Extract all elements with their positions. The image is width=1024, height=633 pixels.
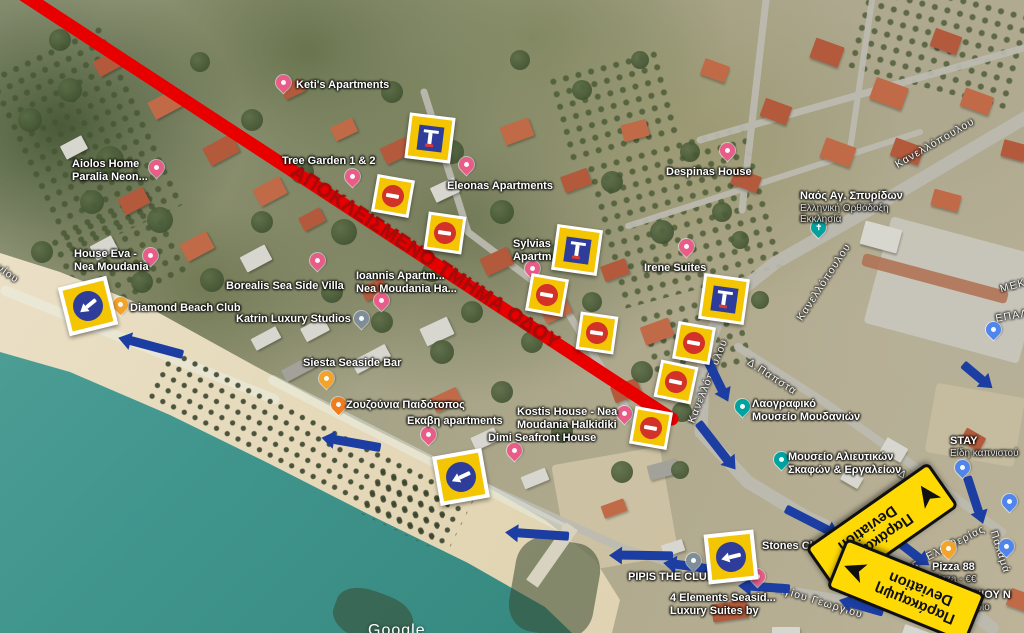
tree bbox=[572, 80, 592, 100]
tree bbox=[490, 200, 514, 224]
ioannis-apartments-label: Ioannis Apartm...Nea Moudania Ha... bbox=[356, 270, 457, 295]
building bbox=[772, 627, 800, 633]
turn-left-sign bbox=[432, 448, 490, 506]
no-entry-sign bbox=[653, 359, 698, 404]
tree bbox=[601, 171, 623, 193]
dead-end-sign bbox=[551, 224, 603, 276]
despinas-house-label: Despinas House bbox=[666, 166, 752, 179]
no-entry-sign bbox=[525, 273, 569, 317]
no-entry-sign bbox=[576, 312, 619, 355]
satellite-map[interactable]: ΑΠΟΚΛΕΙΣΜΕΝΟ ΤΜΗΜΑ ΟΔΟΥ ΚανελλόπουλουΚαν… bbox=[0, 0, 1024, 633]
tree bbox=[18, 108, 42, 132]
pipis-the-club-label: PIPIS THE CLUB bbox=[628, 571, 715, 584]
tree bbox=[49, 29, 71, 51]
tree bbox=[251, 211, 273, 233]
tree bbox=[631, 51, 649, 69]
zouzounia-label: Ζουζούνια Παιδότοπος bbox=[346, 399, 465, 412]
kostis-house-label: Kostis House - NeaMoudania Halkidiki bbox=[517, 406, 617, 431]
diamond-beach-club-label: Diamond Beach Club bbox=[130, 302, 241, 315]
four-elements-label: 4 Elements Seasid...Luxury Suites by bbox=[670, 592, 776, 617]
dead-end-icon bbox=[563, 236, 591, 264]
tree bbox=[430, 340, 454, 364]
stay-shop-label: STAYΕίδη καπνιστού bbox=[950, 435, 1019, 459]
no-entry-icon bbox=[534, 282, 559, 307]
tree bbox=[680, 142, 700, 162]
tree bbox=[241, 109, 263, 131]
no-entry-icon bbox=[433, 221, 458, 246]
house-eva-label: House Eva -Nea Moudania bbox=[74, 248, 149, 273]
dead-end-sign bbox=[698, 273, 750, 325]
left-arrow-icon bbox=[77, 296, 99, 316]
tree bbox=[582, 292, 602, 312]
tree bbox=[631, 361, 653, 383]
dead-end-sign bbox=[404, 112, 455, 163]
aiolos-home-label: Aiolos HomeParalia Neon... bbox=[72, 158, 148, 183]
dimi-seafront-house-label: Dimi Seafront House bbox=[488, 432, 596, 445]
tree bbox=[58, 78, 82, 102]
turn-left-sign bbox=[704, 530, 759, 585]
ketis-apartments-label: Keti's Apartments bbox=[296, 79, 389, 92]
tree-garden-label: Tree Garden 1 & 2 bbox=[282, 155, 376, 168]
left-arrow-icon bbox=[450, 468, 472, 486]
tree bbox=[751, 291, 769, 309]
ekavi-apartments-label: Εκαβη apartments bbox=[407, 415, 503, 428]
google-watermark: Google bbox=[368, 622, 426, 633]
katrin-studios-label: Katrin Luxury Studios bbox=[236, 313, 351, 326]
no-entry-icon bbox=[663, 369, 689, 395]
siesta-seaside-bar-label: Siesta Seaside Bar bbox=[303, 357, 401, 370]
tree bbox=[371, 311, 393, 333]
tree bbox=[200, 268, 224, 292]
tree bbox=[190, 52, 210, 72]
mouseio-alieutikon-label: Μουσείο ΑλιευτικώνΣκαφών & Εργαλείων bbox=[788, 451, 901, 476]
no-entry-sign bbox=[371, 174, 415, 218]
no-entry-icon bbox=[380, 183, 405, 208]
dead-end-icon bbox=[710, 285, 738, 313]
tree bbox=[671, 461, 689, 479]
irene-suites-label: Irene Suites bbox=[644, 262, 706, 275]
borealis-villa-label: Borealis Sea Side Villa bbox=[226, 280, 344, 293]
eleonas-apartments-label: Eleonas Apartments bbox=[447, 180, 553, 193]
tree bbox=[131, 271, 153, 293]
tree bbox=[731, 231, 749, 249]
no-entry-icon bbox=[681, 330, 706, 355]
no-entry-icon bbox=[638, 415, 663, 440]
tree bbox=[650, 220, 674, 244]
dead-end-icon bbox=[416, 124, 444, 152]
tree bbox=[611, 461, 633, 483]
laografiko-mouseio-label: ΛαογραφικόΜουσείο Μουδανιών bbox=[752, 398, 860, 423]
naos-ag-spyridon-label: Ναός Αγ. ΣπυρίδωνΕλληνική ΟρθόδοξηΕκκλησ… bbox=[800, 190, 903, 226]
tree bbox=[712, 202, 732, 222]
left-arrow-icon bbox=[720, 550, 742, 565]
tree bbox=[510, 50, 530, 70]
tree bbox=[491, 381, 513, 403]
tree bbox=[31, 241, 53, 263]
no-entry-sign bbox=[629, 406, 673, 450]
tree bbox=[80, 190, 104, 214]
no-entry-icon bbox=[585, 321, 610, 346]
no-entry-sign bbox=[424, 212, 467, 255]
no-entry-sign bbox=[672, 321, 716, 365]
tree bbox=[147, 207, 173, 233]
